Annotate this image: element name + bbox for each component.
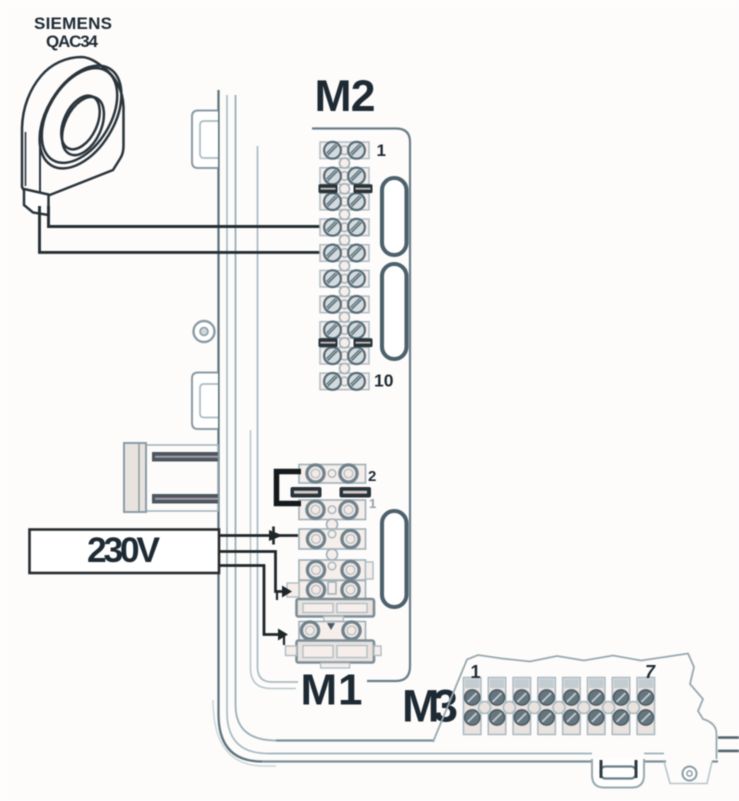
svg-text:M3: M3 — [402, 681, 458, 732]
svg-text:M2: M2 — [315, 72, 376, 121]
svg-text:M1: M1 — [301, 666, 363, 715]
svg-text:2: 2 — [368, 468, 376, 485]
svg-text:7: 7 — [645, 662, 656, 682]
svg-text:230V: 230V — [87, 530, 160, 570]
svg-text:QAC34: QAC34 — [46, 32, 99, 51]
svg-text:10: 10 — [374, 371, 394, 391]
svg-text:1: 1 — [377, 141, 386, 160]
svg-text:1: 1 — [369, 496, 376, 511]
svg-text:1: 1 — [471, 662, 481, 682]
svg-text:SIEMENS: SIEMENS — [34, 14, 112, 33]
